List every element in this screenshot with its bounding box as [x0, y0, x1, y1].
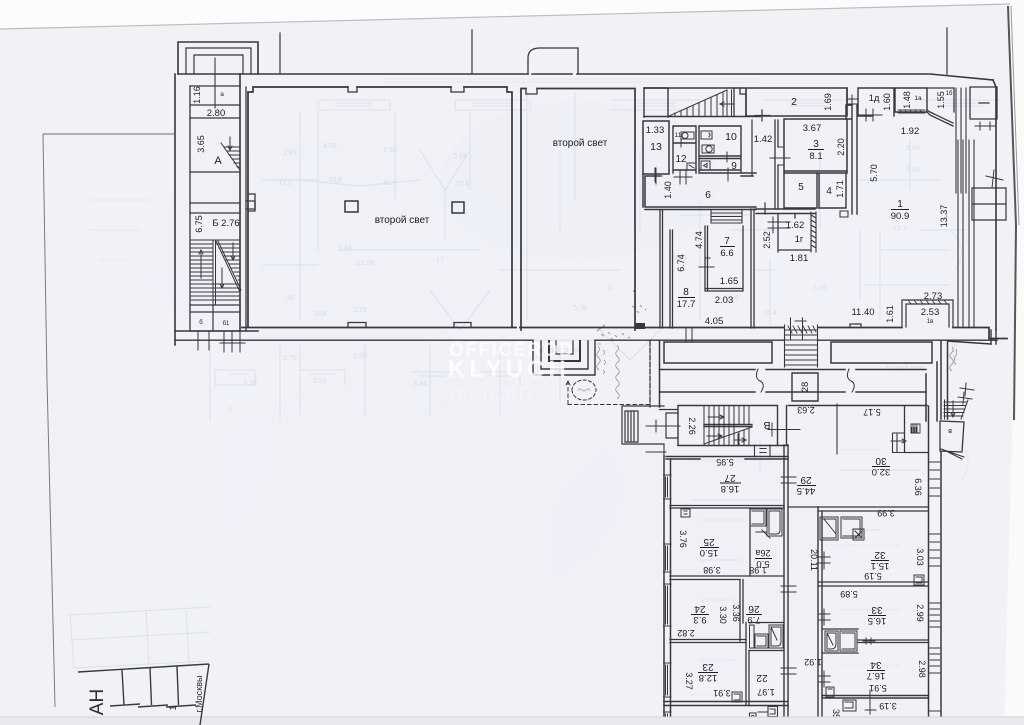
svg-text:3.99: 3.99: [877, 508, 895, 518]
svg-text:17.7: 17.7: [677, 299, 696, 310]
svg-text:1д: 1д: [869, 93, 880, 104]
svg-text:3.36: 3.36: [731, 604, 741, 622]
svg-text:34: 34: [870, 659, 882, 670]
svg-text:2.70: 2.70: [243, 380, 257, 387]
svg-text:3.67: 3.67: [803, 123, 822, 134]
svg-text:1.48: 1.48: [902, 91, 912, 109]
svg-text:2: 2: [791, 96, 797, 108]
svg-text:б: б: [199, 320, 203, 326]
svg-text:17.0: 17.0: [278, 180, 292, 187]
svg-text:3.65: 3.65: [196, 135, 206, 153]
svg-text:5.19: 5.19: [864, 571, 882, 581]
svg-text:22: 22: [756, 672, 768, 683]
svg-text:1.81: 1.81: [790, 253, 809, 264]
svg-text:1.98: 1.98: [749, 565, 767, 575]
svg-text:3.76: 3.76: [678, 530, 688, 548]
svg-text:19.1: 19.1: [893, 225, 907, 232]
svg-text:5.91: 5.91: [869, 683, 887, 693]
svg-text:15: 15: [286, 295, 294, 302]
svg-text:12.8: 12.8: [699, 672, 718, 683]
svg-text:а: а: [220, 91, 224, 98]
svg-text:28: 28: [800, 382, 811, 393]
svg-text:б1: б1: [223, 321, 230, 327]
svg-text:5.89: 5.89: [840, 589, 858, 599]
svg-text:1г: 1г: [795, 234, 804, 245]
svg-text:1в: 1в: [927, 319, 934, 325]
svg-text:2.89: 2.89: [353, 353, 367, 360]
svg-text:11.9: 11.9: [383, 180, 396, 187]
svg-text:4: 4: [826, 186, 832, 197]
svg-text:2.89: 2.89: [313, 378, 327, 385]
svg-text:4.03: 4.03: [323, 143, 337, 150]
svg-text:5: 5: [798, 182, 804, 193]
svg-text:5.95: 5.95: [716, 457, 734, 467]
svg-text:11: 11: [675, 132, 682, 139]
svg-text:3.98: 3.98: [703, 565, 721, 575]
svg-text:90.9: 90.9: [891, 211, 910, 222]
svg-text:5.17: 5.17: [863, 407, 881, 417]
svg-text:26: 26: [748, 603, 760, 614]
svg-text:1.42: 1.42: [754, 134, 773, 145]
svg-text:10: 10: [725, 131, 737, 143]
svg-text:9.3: 9.3: [693, 614, 706, 625]
svg-text:3.27: 3.27: [684, 672, 694, 690]
svg-text:6.36: 6.36: [913, 478, 923, 496]
svg-text:2.98: 2.98: [917, 660, 927, 678]
svg-text:Б 2.76: Б 2.76: [212, 218, 239, 229]
svg-text:2.80: 2.80: [207, 108, 226, 119]
svg-text:1.61: 1.61: [885, 305, 895, 323]
svg-text:25: 25: [703, 536, 715, 547]
svg-text:1.16: 1.16: [192, 86, 202, 104]
svg-text:7: 7: [724, 236, 730, 247]
svg-text:2.73: 2.73: [924, 291, 943, 302]
svg-text:6.74: 6.74: [676, 254, 686, 272]
svg-text:5.16: 5.16: [813, 285, 827, 292]
svg-text:1.60: 1.60: [882, 93, 892, 111]
svg-text:В: В: [763, 419, 770, 431]
svg-text:1.65: 1.65: [720, 276, 739, 287]
svg-text:KLYUCH: KLYUCH: [448, 356, 570, 383]
svg-text:2.99: 2.99: [915, 604, 925, 622]
svg-text:1.62: 1.62: [786, 220, 805, 231]
svg-text:12: 12: [675, 154, 687, 165]
svg-text:4.74: 4.74: [694, 231, 704, 249]
svg-text:1.92: 1.92: [901, 126, 920, 137]
svg-text:3.91: 3.91: [713, 688, 731, 698]
svg-text:1б: 1б: [946, 91, 953, 97]
svg-text:10.4: 10.4: [763, 310, 777, 317]
svg-text:7.9: 7.9: [747, 614, 760, 625]
svg-text:2.20: 2.20: [836, 138, 846, 156]
svg-text:27: 27: [724, 472, 736, 483]
svg-text:3.19: 3.19: [879, 701, 897, 711]
svg-text:6.75: 6.75: [194, 215, 204, 233]
svg-text:5.64: 5.64: [906, 145, 920, 152]
svg-text:2.79: 2.79: [283, 355, 297, 362]
svg-text:2.03: 2.03: [715, 295, 734, 306]
svg-text:8: 8: [228, 407, 232, 414]
svg-text:8.1: 8.1: [809, 151, 822, 162]
svg-text:1: 1: [897, 199, 903, 210]
svg-text:1.40: 1.40: [663, 181, 673, 199]
svg-text:32.0: 32.0: [872, 466, 891, 477]
svg-text:1: 1: [168, 705, 178, 710]
svg-text:2.54: 2.54: [338, 245, 352, 252]
svg-text:3.30: 3.30: [718, 606, 728, 624]
svg-text:1.33: 1.33: [646, 125, 665, 136]
svg-text:5.70: 5.70: [869, 164, 879, 182]
svg-text:30: 30: [875, 455, 887, 466]
svg-text:в: в: [948, 427, 952, 434]
svg-text:32: 32: [874, 549, 886, 560]
svg-text:2.52: 2.52: [762, 231, 772, 249]
svg-text:1.97: 1.97: [757, 687, 775, 697]
svg-text:23: 23: [702, 661, 714, 672]
svg-text:1.55: 1.55: [936, 91, 946, 109]
svg-text:24: 24: [694, 603, 706, 614]
svg-text:1.71: 1.71: [835, 180, 845, 198]
svg-text:6: 6: [705, 189, 711, 201]
svg-text:второй свет: второй свет: [553, 138, 608, 149]
svg-text:3.03: 3.03: [915, 548, 925, 566]
svg-text:3.84: 3.84: [313, 311, 327, 318]
svg-text:второй свет: второй свет: [375, 215, 430, 226]
svg-text:А: А: [214, 155, 222, 167]
svg-text:2.85: 2.85: [383, 147, 397, 154]
svg-text:29: 29: [800, 474, 812, 485]
svg-text:2.82: 2.82: [677, 628, 695, 638]
svg-text:3.84: 3.84: [413, 381, 427, 388]
svg-text:0.64: 0.64: [906, 167, 920, 174]
svg-text:2.89: 2.89: [283, 150, 297, 157]
svg-text:16.7: 16.7: [867, 670, 886, 681]
svg-text:4.05: 4.05: [705, 316, 724, 327]
svg-text:6: 6: [608, 285, 612, 292]
svg-text:10.8: 10.8: [328, 177, 342, 184]
svg-text:второй свет: второй свет: [886, 364, 925, 372]
svg-text:г.Москвы: г.Москвы: [194, 676, 204, 713]
svg-text:АН: АН: [87, 689, 108, 715]
svg-text:26а: 26а: [755, 548, 770, 558]
svg-text:1а: 1а: [914, 95, 922, 102]
svg-text:2.70: 2.70: [353, 307, 367, 314]
svg-text:6.6: 6.6: [720, 248, 733, 259]
svg-text:13.37: 13.37: [939, 205, 949, 228]
svg-text:16.8: 16.8: [721, 483, 740, 494]
svg-text:9: 9: [731, 161, 737, 172]
svg-text:33: 33: [871, 604, 883, 615]
svg-text:III: III: [911, 425, 918, 434]
svg-text:1.92: 1.92: [804, 657, 822, 667]
svg-text:2.53: 2.53: [921, 307, 940, 318]
svg-text:11.40: 11.40: [851, 307, 874, 318]
svg-text:22.19: 22.19: [356, 260, 374, 267]
svg-text:2.26: 2.26: [687, 417, 697, 435]
svg-text:5.84: 5.84: [453, 153, 467, 160]
svg-text:16.5: 16.5: [868, 615, 887, 626]
svg-text:13: 13: [650, 141, 662, 153]
svg-text:8: 8: [683, 287, 689, 298]
svg-text:20.11: 20.11: [809, 549, 819, 571]
svg-text:15.0: 15.0: [700, 547, 719, 558]
svg-text:2.63: 2.63: [797, 405, 815, 415]
svg-text:OFFICER: OFFICER: [440, 385, 534, 406]
svg-text:20.4: 20.4: [455, 181, 469, 188]
svg-text:5.38: 5.38: [573, 305, 587, 312]
svg-text:15.1: 15.1: [871, 560, 890, 571]
svg-text:17: 17: [436, 257, 444, 264]
svg-text:44.5: 44.5: [797, 485, 816, 496]
svg-text:3: 3: [813, 139, 819, 150]
svg-text:1.69: 1.69: [823, 93, 833, 111]
